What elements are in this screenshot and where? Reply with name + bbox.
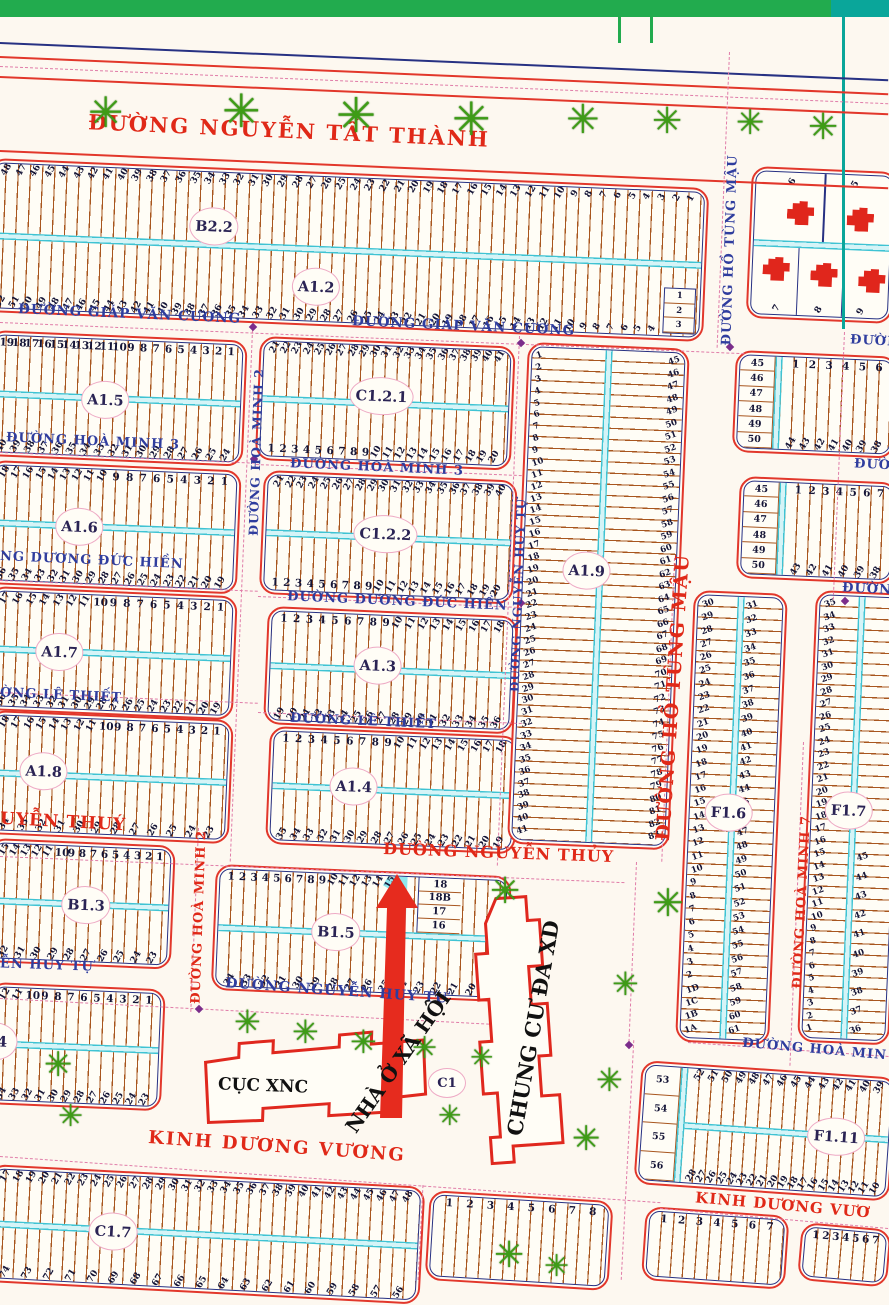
tree-icon: ✳ [336, 92, 376, 140]
block-top-right: 65 789 [746, 166, 889, 324]
lot-numbers: 12345678 [439, 1197, 603, 1219]
lot-numbers: 1234567 [655, 1213, 780, 1234]
block-bottom-2: 1234567 [641, 1206, 790, 1290]
lot-numbers: 123456 [787, 358, 887, 374]
tree-icon: ✳ [452, 96, 491, 142]
building-icon [858, 268, 886, 293]
tree-icon: ✳ [494, 1238, 524, 1274]
tree-icon: ✳ [596, 1064, 623, 1096]
lot-numbers: 1234567 [810, 1229, 881, 1247]
green-tick [618, 17, 621, 43]
lot-numbers: 1234567 [791, 484, 887, 500]
tree-icon: ✳ [736, 106, 765, 140]
lot-numbers: 2122232425262728293031323334353637383940 [273, 476, 507, 496]
street-label-nguyen-tat-thanh: ĐƯỜNG NGUYỄN TẤT THÀNH [88, 109, 491, 152]
block-right-a: 454647484950 123456 44434241403938 [732, 350, 889, 459]
street-centerline [0, 66, 888, 104]
teal-top-bar-segment [831, 0, 889, 17]
tree-icon: ✳ [566, 100, 600, 140]
lot-numbers: 101112131415161718 [392, 617, 507, 634]
corner-lots: 123 [662, 287, 696, 334]
tree-icon: ✳ [438, 1102, 461, 1130]
cadastral-map: 4847464544434241403938373635343332313029… [0, 0, 889, 1280]
lot-numbers: 10987654321 [93, 596, 228, 614]
lot-numbers: 181716151413121110 [0, 466, 110, 483]
lot-numbers: 2122232425262728293031323334353637383940… [269, 342, 505, 362]
street-label-cut: ĐƯỜNG [850, 332, 889, 350]
block-bottom-3: 1234567 [797, 1222, 889, 1288]
building-icon [810, 262, 838, 287]
lot-numbers: 17161514131211 [0, 592, 94, 608]
tree-icon: ✳ [490, 874, 520, 910]
lot-numbers: 101112131415161718 [394, 737, 509, 754]
lot-numbers: 4847464544434241403938373635343332313029… [0, 164, 699, 204]
lot-numbers: 44434241403938 [784, 438, 884, 453]
green-top-bar [0, 0, 889, 17]
tree-icon: ✳ [58, 1102, 83, 1132]
tree-icon: ✳ [88, 92, 123, 134]
lot-numbers: 5251504948474645444342414039 [693, 1070, 887, 1094]
tree-icon: ✳ [572, 1122, 601, 1156]
lot-numbers: 987654321 [109, 471, 232, 488]
street-label-cut: ĐƯỜNG [854, 456, 889, 474]
tree-icon: ✳ [44, 1048, 73, 1082]
tree-icon: ✳ [612, 968, 639, 1000]
building-icon [787, 201, 815, 226]
street-label-ho-tung-mau-top: ĐƯỜNG HỒ TÙNG MẬU [719, 154, 741, 345]
green-tick [650, 17, 653, 43]
lot-numbers: 19181716151413121110987654321 [0, 336, 238, 358]
tree-icon: ✳ [350, 1026, 377, 1058]
tree-icon: ✳ [470, 1044, 493, 1072]
lot-numbers: 123456789 [265, 442, 372, 458]
tree-icon: ✳ [292, 1016, 319, 1048]
side-lots: 454647484950 [741, 481, 780, 574]
street-label-nguyen-huy-tu-cut: ỄN HUY TỰ [0, 956, 94, 974]
side-lots: 454647484950 [737, 355, 776, 448]
block-c17: 1718192021222324252627282930313233343536… [0, 1164, 425, 1305]
block-c121: 2122232425262728293031323334353637383940… [255, 336, 516, 471]
tree-icon: ✳ [652, 104, 682, 140]
tree-icon: ✳ [652, 884, 684, 922]
block-c122: 2122232425262728293031323334353637383940… [259, 470, 518, 605]
tree-icon: ✳ [808, 110, 838, 146]
block-f111: 53545556 5251504948474645444342414039 28… [633, 1060, 889, 1202]
block-f16: 3029282726252423222120191817161514131211… [675, 590, 788, 1046]
tree-icon: ✳ [234, 1006, 261, 1038]
lot-numbers: 434241403938 [788, 564, 884, 578]
block-a14: 123456789 101112131415161718 35343332313… [265, 726, 520, 854]
lot-numbers: 1817161514131211 [0, 716, 99, 732]
teal-edge-line [842, 17, 845, 329]
cuc-xnc-label: CỤC XNC [218, 1074, 309, 1097]
block-right-b: 454647484950 1234567 434241403938 [736, 476, 889, 585]
tree-icon: ✳ [544, 1252, 569, 1282]
lot-numbers: 10987654321 [99, 721, 224, 738]
tree-icon: ✳ [222, 88, 261, 134]
lot-numbers: 123456789 [277, 612, 392, 629]
lot-numbers: 789 [756, 302, 882, 318]
lot-numbers: 74737271706968676665646362616059585756 [0, 1266, 410, 1298]
survey-mark [249, 323, 257, 331]
block-a16: 181716151413121110 987654321 36353433323… [0, 460, 242, 594]
building-icon [762, 256, 790, 281]
building-icon [846, 207, 874, 232]
lot-numbers: 123456789 [279, 732, 394, 749]
